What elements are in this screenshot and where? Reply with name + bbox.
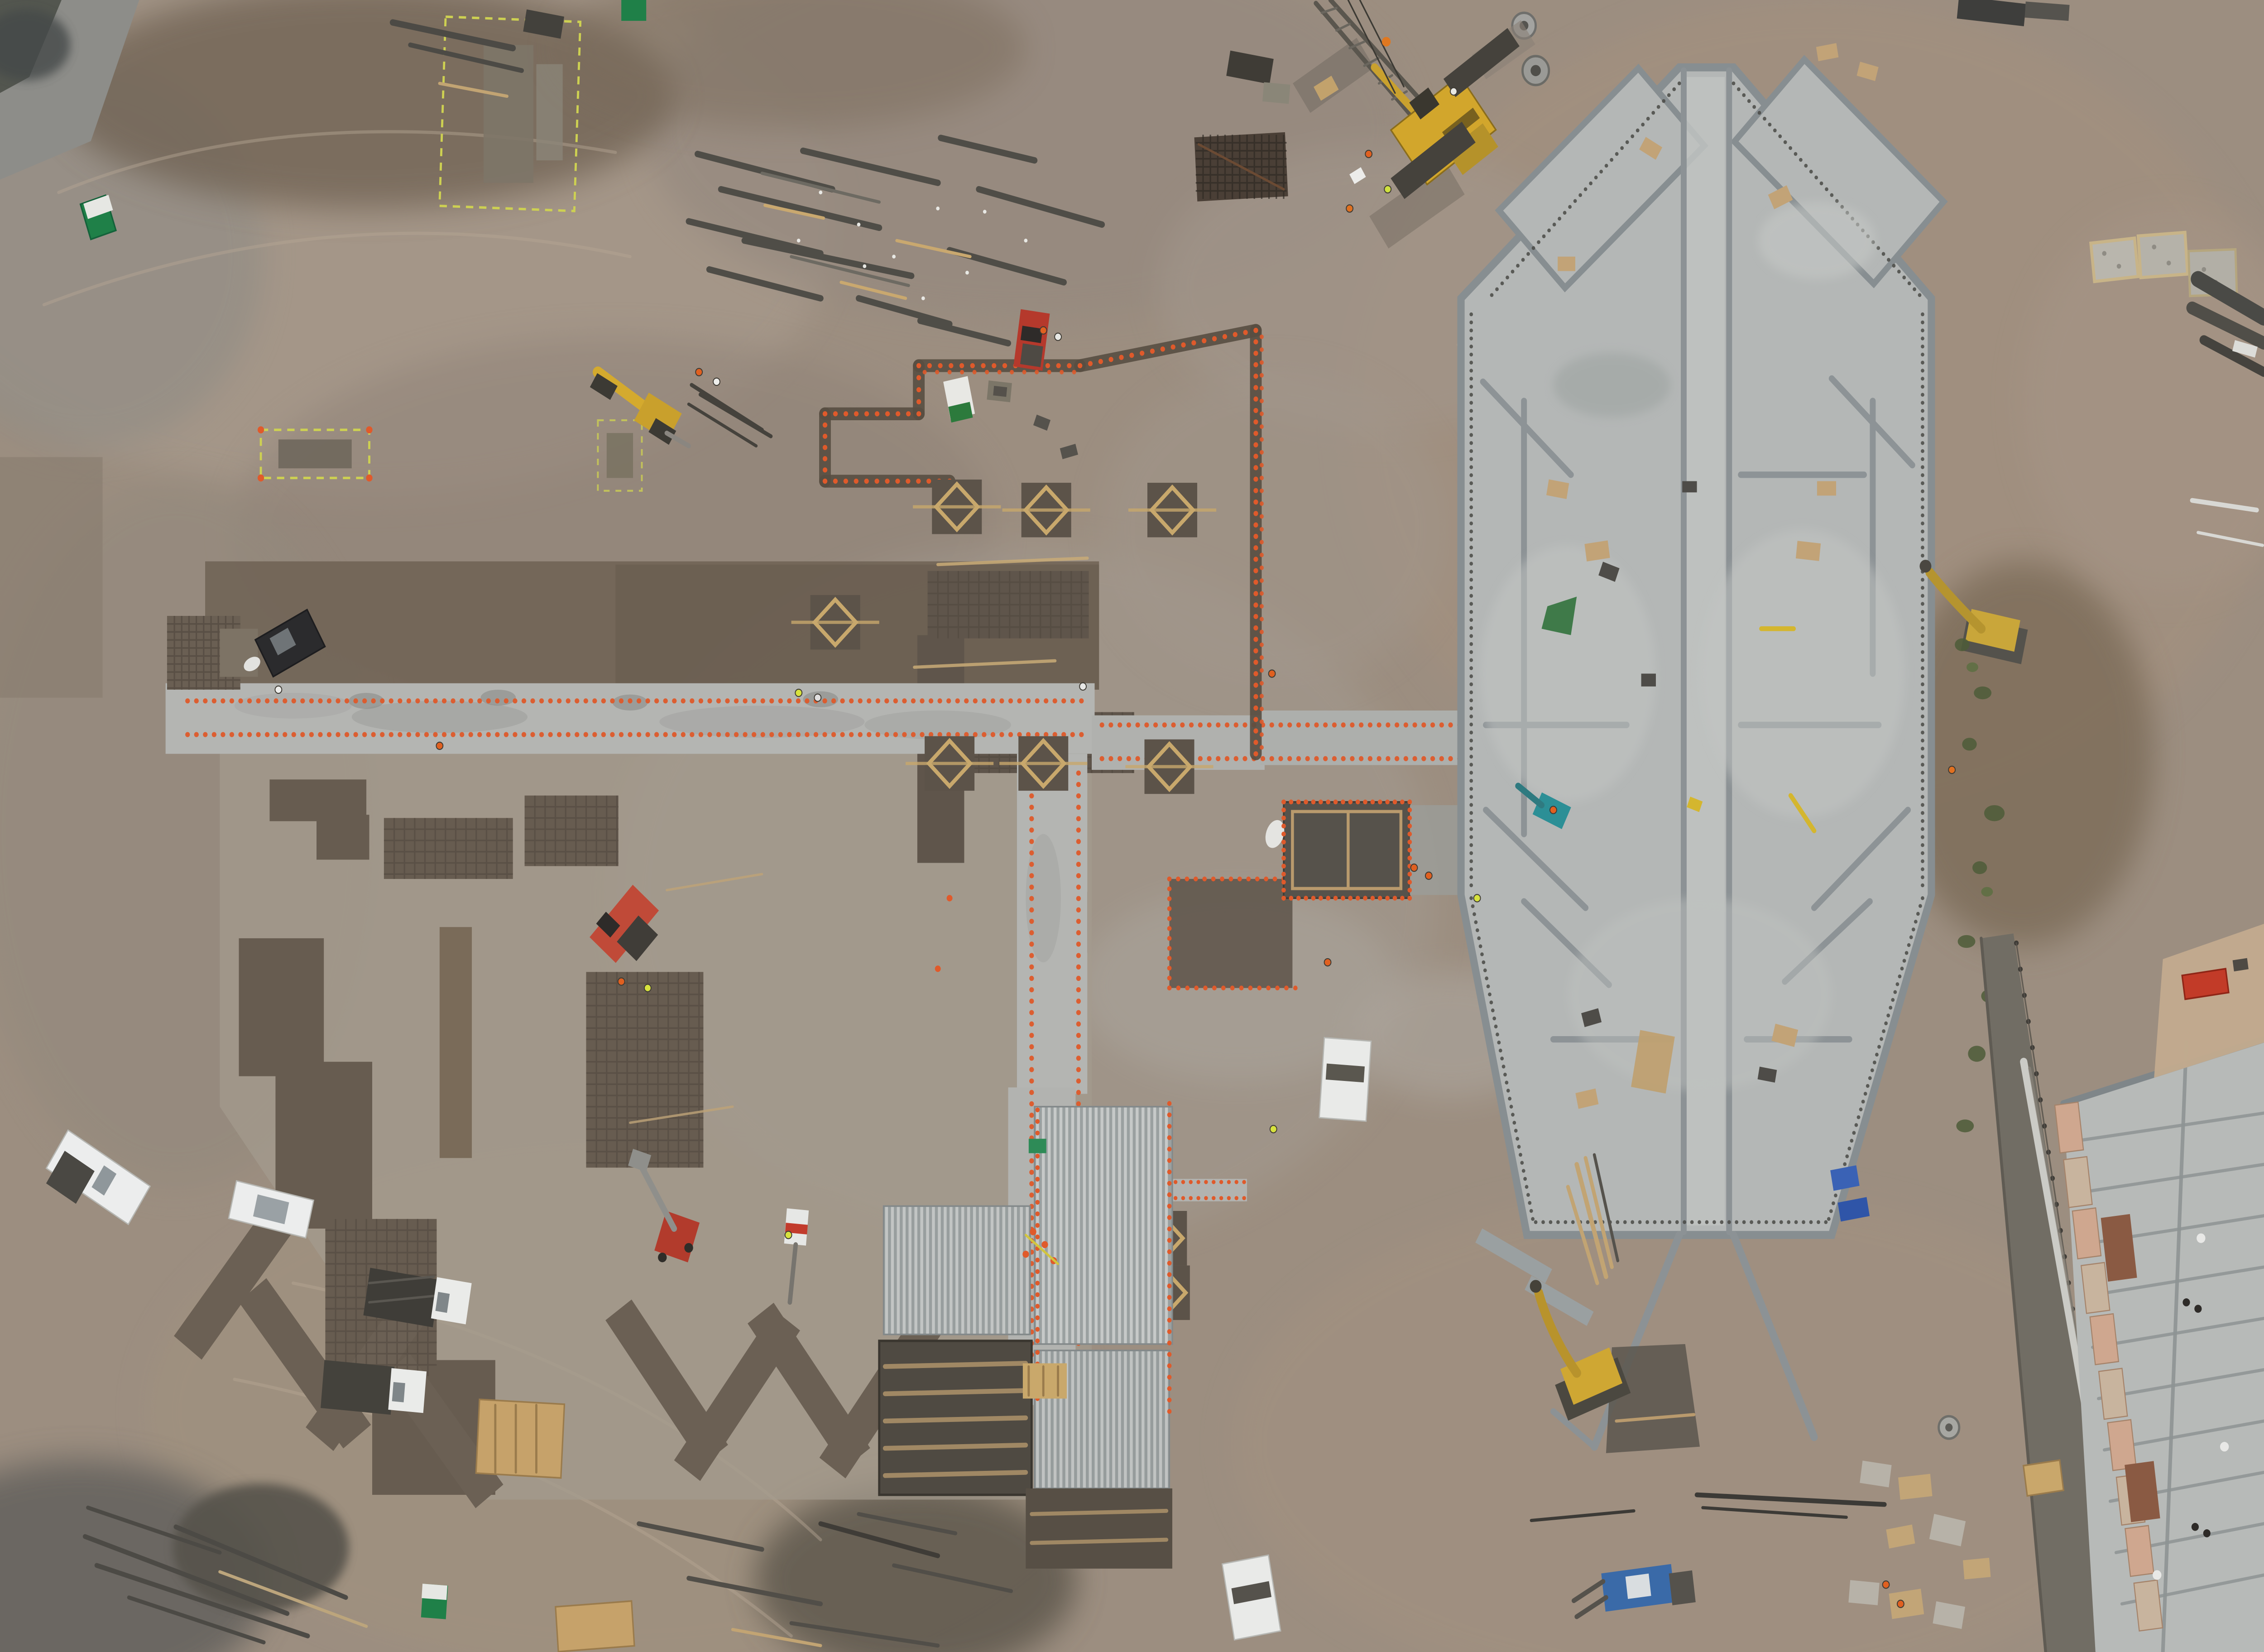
excavator-bucket	[1530, 1280, 1542, 1292]
worker	[1079, 683, 1086, 690]
pink-wall-panel	[2081, 1263, 2110, 1313]
debris-box	[2091, 238, 2139, 282]
pink-wall-panel	[2072, 1208, 2101, 1258]
weeds	[1984, 805, 2005, 821]
rooftop-unit	[2197, 1234, 2205, 1243]
pallet-stack	[1860, 1460, 1891, 1487]
wood-pallet	[1796, 541, 1821, 561]
traffic-cone	[1022, 1251, 1029, 1258]
tractor-cab	[1626, 1574, 1651, 1599]
traffic-cone	[366, 426, 372, 433]
porta-potty	[621, 0, 646, 21]
steel-bundle	[2024, 1, 2069, 21]
pallet-stack	[1898, 1474, 1933, 1499]
crate-open	[993, 386, 1007, 397]
construction-site-scene	[0, 0, 2264, 1652]
worker	[1346, 205, 1353, 212]
wing-pit	[1606, 1344, 1700, 1453]
pallet-stack	[1889, 1589, 1924, 1619]
worker	[713, 378, 720, 385]
rebar-cap-row	[1099, 722, 1462, 727]
rubble	[2167, 261, 2171, 266]
worker	[1897, 1600, 1904, 1608]
weeds	[1956, 1119, 1974, 1132]
rubble	[2152, 245, 2156, 250]
debris-box	[2138, 232, 2187, 278]
rubble	[2117, 264, 2121, 269]
speck	[863, 264, 867, 269]
red-pickup-bed	[1020, 343, 1043, 367]
rebar-cap-row	[1167, 877, 1295, 882]
equipment-box	[2233, 958, 2249, 971]
worker	[1425, 872, 1432, 879]
equipment-box	[1682, 481, 1697, 493]
speck	[797, 239, 801, 243]
crane-hook	[1382, 37, 1391, 46]
worker	[696, 369, 702, 376]
wood-pallet	[1817, 481, 1836, 496]
lumber-crib	[556, 1601, 634, 1652]
concrete-pipe-hole	[1530, 65, 1541, 76]
crate	[1262, 82, 1290, 104]
traffic-cone	[947, 895, 953, 901]
wood-joist	[885, 1363, 1026, 1366]
rooftop-unit	[2220, 1442, 2229, 1451]
worker	[1324, 959, 1331, 966]
green-box	[1029, 1139, 1046, 1153]
weeds	[1981, 887, 1993, 897]
slab-stain	[1553, 353, 1670, 417]
boom-lift-wheel	[684, 1243, 693, 1253]
strip-stain	[480, 690, 516, 706]
strip-stain	[235, 693, 352, 719]
worker	[1040, 327, 1047, 334]
pink-wall-panel	[2134, 1580, 2163, 1631]
traffic-cone	[366, 475, 372, 482]
slab-stain	[1568, 898, 1832, 1090]
dark-soil-edge	[0, 457, 103, 697]
concrete-ring-hole	[1945, 1423, 1952, 1431]
elevator-pit	[1284, 802, 1410, 898]
pit-trench	[536, 64, 562, 161]
speck	[936, 206, 940, 211]
weeds	[1967, 663, 1978, 672]
rebar-trench	[384, 818, 513, 879]
metal-decking	[1035, 1107, 1172, 1344]
tractor-implement	[1669, 1570, 1696, 1605]
worker	[644, 984, 651, 992]
worker	[1550, 806, 1557, 813]
traffic-cone	[935, 965, 941, 972]
worker	[1411, 864, 1418, 871]
pink-wall-panel	[2107, 1420, 2136, 1470]
vent-pair	[2182, 1298, 2190, 1306]
speck	[892, 255, 896, 259]
traffic-cone	[1041, 1241, 1048, 1249]
worker	[1269, 670, 1276, 677]
wood-joist	[885, 1418, 1026, 1421]
wood-joist	[885, 1472, 1026, 1475]
worker	[1055, 333, 1061, 341]
boom-lift-wheel	[658, 1253, 667, 1262]
vent-pair	[2194, 1305, 2202, 1313]
concrete-apron	[1410, 805, 1465, 895]
vent-pair	[2203, 1529, 2211, 1537]
excavation-pit	[1026, 1489, 1172, 1569]
worker	[1365, 150, 1372, 158]
vent-pair	[2192, 1523, 2199, 1531]
speck	[857, 223, 861, 227]
truck-glass	[1326, 1064, 1365, 1083]
worker	[1270, 1125, 1277, 1133]
pink-wall-panel	[2090, 1314, 2119, 1364]
weeds	[1958, 935, 1976, 948]
worker	[275, 686, 282, 693]
rubble	[2102, 251, 2106, 256]
slab-stain	[1700, 529, 1905, 818]
worker	[1883, 1581, 1890, 1588]
rebar-trench	[586, 972, 703, 1167]
pit-trench	[278, 439, 352, 468]
wood-joist	[885, 1445, 1026, 1448]
porta-potty-roof	[422, 1584, 447, 1600]
speck	[921, 297, 925, 301]
pink-wall-panel	[2063, 1157, 2092, 1207]
worker	[618, 978, 625, 985]
speck	[965, 271, 969, 275]
equipment-box	[1641, 674, 1656, 687]
weeds	[1962, 738, 1976, 750]
worker	[785, 1231, 792, 1239]
trench-l	[1170, 879, 1293, 988]
lumber-crib	[476, 1399, 564, 1478]
weeds	[1974, 687, 1991, 699]
tan-crate	[2024, 1460, 2064, 1496]
worker	[436, 742, 443, 749]
stake-truck-bed	[321, 1360, 394, 1415]
pink-wall-panel	[2125, 1526, 2154, 1576]
speck	[819, 191, 822, 195]
pink-wall-panel	[2099, 1369, 2127, 1419]
dirt-pile	[173, 1484, 349, 1612]
slab-stain	[1758, 202, 1875, 279]
weeds	[1972, 861, 1987, 874]
worker	[1450, 88, 1457, 95]
wood-pallet	[1558, 257, 1575, 271]
worker	[1948, 766, 1955, 773]
weeds	[1968, 1046, 1986, 1061]
rebar-cap-row	[1167, 985, 1298, 990]
metal-decking	[883, 1206, 1030, 1334]
speck	[1024, 239, 1027, 243]
rebar-trench	[239, 938, 324, 1076]
slab-stain	[1480, 545, 1656, 802]
traffic-cone	[258, 475, 264, 482]
pallet-stack	[1848, 1580, 1879, 1605]
speck	[983, 210, 987, 214]
stake-truck-glass	[392, 1382, 405, 1402]
worker	[795, 689, 802, 696]
traffic-cone	[258, 426, 264, 433]
pallet-stack	[1963, 1558, 1991, 1580]
pit-trench	[607, 433, 633, 478]
aerial-photo: Aerial drone view of a large constructio…	[0, 0, 2264, 1652]
pink-wall-panel	[2055, 1102, 2083, 1153]
worker	[814, 694, 821, 701]
rooftop-unit	[2153, 1570, 2161, 1580]
worker	[1384, 186, 1391, 193]
rebar-trench	[317, 815, 369, 860]
wood-pallet	[1584, 540, 1610, 561]
traffic-cone	[1030, 1228, 1036, 1235]
worker	[1474, 894, 1481, 902]
weeds	[1955, 639, 1969, 651]
rubble	[2202, 267, 2206, 272]
center-trench	[440, 927, 472, 1158]
wood-joist	[885, 1391, 1026, 1394]
excavator-bucket	[1919, 560, 1931, 572]
